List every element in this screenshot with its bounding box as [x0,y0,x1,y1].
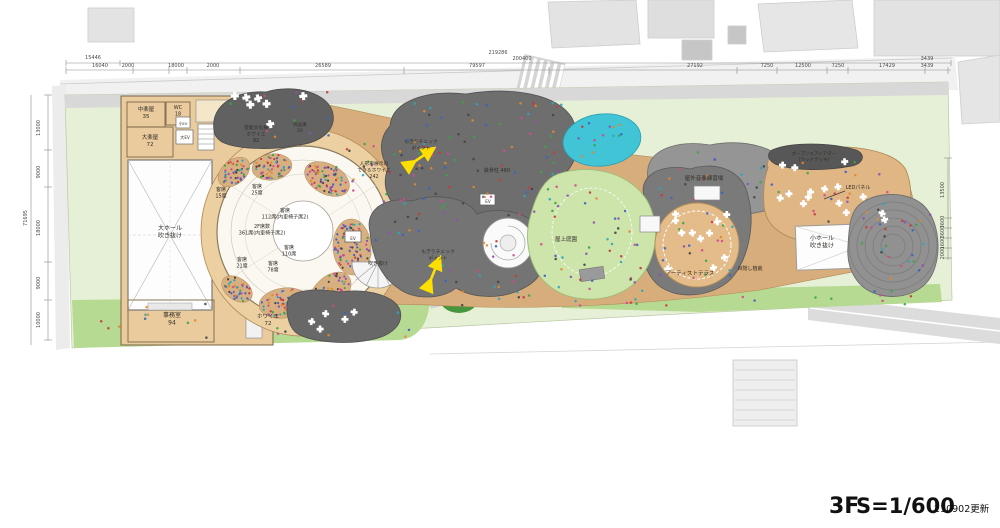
label-fukinuke-stair: 吹き抜け [368,260,388,267]
site-plan-drawing: 1544621928620040016040200018000200026589… [0,0,1000,528]
dim-top: 3439 [921,63,934,69]
floor-plan-canvas: { "title_block": { "floor": "3F", "scale… [0,0,1000,528]
label-seat-15: 客席15席 [215,186,226,200]
dim-left: 18000 [36,220,42,236]
floor-label: 3F [829,494,859,519]
context-building [88,8,134,42]
context-building [648,0,714,38]
dim-top: 219286 [488,50,507,56]
context-building [958,55,1000,124]
dim-top: 26589 [315,63,331,69]
dim-left-overall: 71695 [23,210,29,226]
label-ko-hall-void: 小ホール吹き抜け [810,234,834,250]
dim-right: 3600 [940,226,946,239]
terrace-stair-box-1 [694,186,720,200]
label-seat-78: 客席78席 [267,260,278,274]
label-artist-terrace: アーティストテラス [666,270,715,277]
dim-top: 18000 [168,63,184,69]
dim-top: 7250 [832,63,845,69]
dim-top: 27192 [687,63,703,69]
label-main-hall-void: 大ホール吹き抜け [158,224,182,240]
label-ev-1: EV [485,199,491,204]
label-okugai-ongaku: 屋外音楽練習場 [685,174,724,182]
dim-left: 10000 [36,312,42,328]
dim-top: 2000 [122,63,135,69]
label-ev-2: EV [350,236,356,241]
dim-top: 17429 [879,63,895,69]
title-block: 3F S=1/600 210902更新 [829,494,990,519]
updated-label: 210902更新 [934,503,990,515]
label-seat-25: 客席25席 [251,183,262,197]
dim-right: 2000 [940,247,946,260]
context-building [758,0,858,52]
context-building [682,40,712,60]
context-building [728,26,746,44]
dim-top: 15446 [85,55,101,61]
dim-top: 16040 [92,63,108,69]
label-seat-21: 客席21席 [236,256,247,270]
label-ko-ev: 小EV [179,121,188,126]
dim-top: 2000 [207,63,220,69]
label-led-panel: LEDパネル [846,185,871,191]
label-dai-ev: 大EV [180,134,190,141]
stair-box [198,124,214,150]
dim-top: 79597 [469,63,485,69]
label-tekkotsu-chu: 鉄骨柱 460 [484,167,510,174]
dim-top: 3439 [921,56,934,62]
dim-left: 9000 [36,166,42,179]
context-building [874,0,1000,56]
label-mekakushi-shokusai: 目隠し植栽 [737,265,762,272]
dim-top: 12500 [795,63,811,69]
terrace-stair-box-2 [640,216,660,232]
label-okujo-teien: 屋上庭園 [555,235,578,243]
dim-left: 9000 [36,277,42,290]
context-building [548,0,640,48]
dim-left: 13000 [36,120,42,136]
dim-right: 13500 [940,182,946,198]
dim-top: 7250 [761,63,774,69]
spiral-ramp [483,218,533,268]
dim-top: 200400 [512,56,531,62]
